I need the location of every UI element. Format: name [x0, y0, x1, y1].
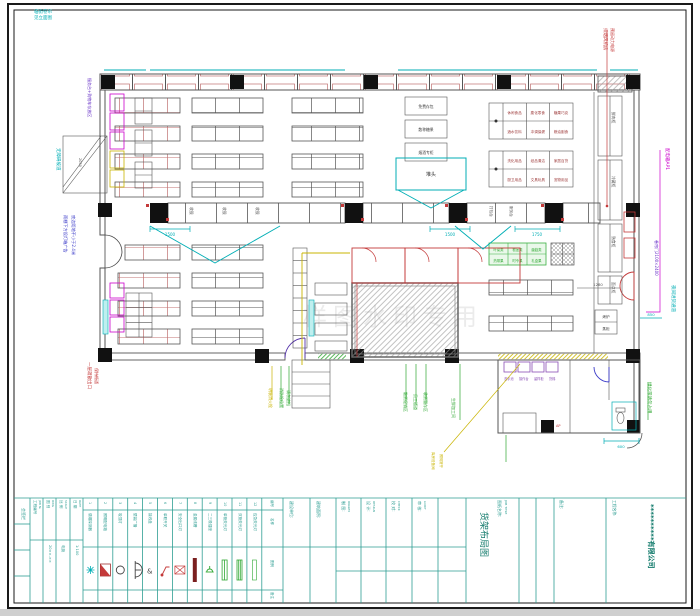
- svg-text:建设单位:: 建设单位:: [289, 501, 295, 518]
- svg-text:熟食柜: 熟食柜: [611, 236, 616, 248]
- svg-text:制 图:: 制 图:: [341, 501, 347, 512]
- checkout-band: 收银 收银 收银 打包台 服务台: [146, 203, 600, 223]
- svg-text:宠物用品: 宠物用品: [554, 177, 569, 182]
- crosshatch-grid: [551, 243, 574, 265]
- svg-text:菌菇类: 菌菇类: [531, 247, 542, 252]
- svg-text:电施: 电施: [61, 545, 66, 553]
- smoke-detector-icon: [87, 566, 95, 574]
- svg-text:编号: 编号: [270, 500, 275, 508]
- stack-label: 免费存包: [418, 104, 433, 109]
- svg-text:冷藏柜: 冷藏柜: [611, 176, 616, 188]
- stack-label: 烟酒专柜: [418, 150, 433, 155]
- svg-text:2: 2: [103, 502, 107, 504]
- floor-plan-svg: 样图水印专用: [0, 0, 700, 616]
- svg-text:图纸名称:: 图纸名称:: [497, 500, 503, 517]
- svg-text:壁装广播: 壁装广播: [133, 513, 138, 528]
- store-note: 照明常开: [439, 454, 444, 468]
- cad-drawing-sheet: 样图水印专用: [0, 0, 700, 616]
- svg-text:DRAWN: DRAWN: [347, 501, 351, 512]
- svg-text:双管荧光灯: 双管荧光灯: [238, 513, 243, 531]
- svg-text:收银: 收银: [189, 207, 194, 215]
- hydrant-note: 明装消火栓: [268, 388, 274, 408]
- svg-text:9: 9: [208, 502, 212, 504]
- exit-note: 保持畅通: [94, 368, 100, 384]
- project-name-label: 工程名称:: [612, 500, 617, 516]
- svg-text:8: 8: [193, 502, 197, 504]
- svg-text:AUDIT: AUDIT: [423, 501, 427, 510]
- fixture-label: 货梯: [549, 376, 556, 381]
- svg-text:厨卫用品: 厨卫用品: [507, 177, 522, 182]
- svg-text:3: 3: [118, 502, 122, 504]
- zone-note: 员工通道: [413, 394, 419, 410]
- svg-text:礼盒果: 礼盒果: [531, 258, 542, 263]
- svg-text:SCALE: SCALE: [64, 500, 68, 509]
- produce-grid: 叶菜类 根茎类 菌菇类 热带果 时令果 礼盒果: [489, 243, 546, 265]
- svg-text:7: 7: [178, 502, 182, 504]
- svg-text:2050: 2050: [78, 158, 82, 167]
- sign-col-label: 会签栏: [21, 508, 27, 520]
- svg-text:安全出口灯: 安全出口灯: [178, 513, 183, 531]
- svg-text:1:100: 1:100: [75, 545, 79, 556]
- svg-text:膨化零食: 膨化零食: [531, 110, 546, 115]
- fan-note: 排烟风机房: [602, 28, 609, 51]
- notes-label: 备注:: [559, 500, 565, 509]
- sheet-bottom-margin: [0, 609, 700, 616]
- zone-note: 生鲜加工间: [451, 398, 457, 418]
- service-desk-note: 服务台+购物车存放区: [87, 78, 93, 117]
- svg-text:4: 4: [133, 502, 137, 504]
- zone-note: 收货暂存区: [423, 392, 429, 412]
- svg-text:家居百货: 家居百货: [554, 158, 569, 163]
- cable-tray-icon: [193, 558, 197, 582]
- stack-label: 散称糖果: [418, 127, 433, 132]
- svg-text:1: 1: [88, 502, 92, 504]
- svg-text:6: 6: [163, 502, 167, 504]
- green-wall-strip: [318, 354, 346, 359]
- svg-text:纸品清洁: 纸品清洁: [531, 158, 546, 163]
- svg-text:12: 12: [253, 502, 257, 506]
- svg-text:糖果巧克: 糖果巧克: [554, 110, 569, 115]
- svg-text:校 对:: 校 对:: [391, 501, 397, 512]
- svg-text:10: 10: [223, 502, 227, 506]
- zone-note: 散货促销区: [403, 392, 409, 412]
- cold-storage-room: [352, 283, 458, 357]
- hydrant-note: 请勿遮挡: [286, 390, 292, 406]
- unload-note: 夜间进货通道: [670, 285, 677, 312]
- svg-text:1750: 1750: [532, 232, 543, 237]
- svg-text:名称: 名称: [270, 518, 275, 526]
- svg-text:吸顶灯: 吸顶灯: [118, 513, 123, 524]
- svg-text:洗化用品: 洗化用品: [507, 158, 522, 163]
- svg-text:11: 11: [238, 502, 242, 506]
- svg-text:照明配电箱: 照明配电箱: [103, 513, 108, 531]
- svg-text:单联开关: 单联开关: [163, 513, 168, 528]
- svg-text:酒水饮料: 酒水饮料: [507, 129, 522, 134]
- greenbelt-note: 绿化带请勿占用: [646, 382, 653, 414]
- fixture-label: 操作台: [519, 376, 529, 381]
- svg-text:CHECK: CHECK: [397, 501, 401, 511]
- corner-note: 见立面图: [34, 14, 52, 21]
- company-name: **********有限公司: [647, 504, 656, 569]
- svg-text:1500: 1500: [445, 232, 456, 237]
- svg-text:审 核:: 审 核:: [417, 501, 423, 512]
- svg-text:鲜肉柜: 鲜肉柜: [611, 112, 616, 124]
- svg-text:二三极插座: 二三极插座: [208, 513, 213, 531]
- svg-text:接线盒: 接线盒: [148, 513, 153, 524]
- svg-text:建筑面积:: 建筑面积:: [316, 501, 322, 518]
- yellow-wall-strip: [498, 354, 608, 359]
- svg-text:单管荧光灯: 单管荧光灯: [223, 513, 228, 531]
- junction-box-icon: &: [147, 568, 153, 576]
- svg-text:比 例: 比 例: [59, 500, 64, 509]
- svg-text:5: 5: [148, 502, 152, 504]
- svg-text:DESIGN: DESIGN: [372, 501, 376, 512]
- svg-text:JOB №: JOB №: [38, 499, 42, 509]
- svg-text:DWG: DWG: [51, 500, 55, 507]
- fan-note: 预留动力电源: [610, 28, 616, 52]
- ap-label: AP: [556, 424, 561, 428]
- svg-text:应急荧光灯: 应急荧光灯: [253, 513, 258, 531]
- svg-text:蒸柜: 蒸柜: [602, 326, 610, 331]
- svg-text:JOB TITLE: JOB TITLE: [504, 499, 508, 514]
- store-note: 库房设备间: [431, 452, 436, 470]
- svg-text:DATE: DATE: [78, 500, 82, 508]
- svg-text:收银: 收银: [255, 207, 260, 215]
- svg-text:工程编号: 工程编号: [33, 500, 38, 515]
- corner-note: 临街卷帘: [34, 8, 52, 15]
- canopy-note: 雨棚下方设灯箱广告: [62, 215, 69, 253]
- svg-text:烤炉: 烤炉: [602, 314, 610, 319]
- svg-text:20××-××: 20××-××: [48, 545, 52, 563]
- svg-text:冲调保健: 冲调保健: [531, 129, 546, 134]
- svg-text:1500: 1500: [165, 232, 176, 237]
- svg-text:文具玩具: 文具玩具: [531, 177, 546, 182]
- svg-text:休闲食品: 休闲食品: [507, 110, 522, 115]
- hydrant-note: 消防栓位置: [279, 388, 285, 408]
- svg-text:粮油副食: 粮油副食: [554, 129, 569, 134]
- fixture-label: 留样柜: [534, 376, 544, 381]
- dbox-note: 配电箱AP1: [664, 148, 671, 170]
- svg-text:感烟探测器: 感烟探测器: [88, 513, 93, 531]
- svg-text:备注: 备注: [270, 592, 275, 600]
- exit-note: 一层疏散出口: [86, 362, 93, 389]
- svg-text:服务台: 服务台: [509, 206, 514, 217]
- svg-text:600: 600: [617, 444, 625, 449]
- svg-text:日 期: 日 期: [73, 500, 78, 509]
- svg-text:时令果: 时令果: [512, 258, 523, 263]
- promo-label: 堆头: [426, 171, 436, 178]
- svg-text:热带果: 热带果: [493, 258, 504, 263]
- svg-text:1280: 1280: [593, 282, 603, 287]
- svg-text:图 别: 图 别: [46, 500, 51, 509]
- svg-text:850: 850: [647, 312, 655, 317]
- svg-text:设 计:: 设 计:: [366, 501, 372, 512]
- svg-text:金属线槽: 金属线槽: [193, 513, 198, 528]
- cyan-counter: [309, 300, 314, 336]
- svg-text:收银: 收银: [222, 207, 227, 215]
- ramp-note: 无障碍坡道: [55, 148, 62, 171]
- drawing-title: 货架布局图: [478, 512, 490, 557]
- rolldoor-note: 卷帘门2100×2400: [654, 240, 660, 276]
- svg-text:图例: 图例: [270, 560, 275, 568]
- svg-text:打包台: 打包台: [489, 206, 494, 217]
- canopy-note: 底边距地不小于2.4米: [70, 215, 77, 256]
